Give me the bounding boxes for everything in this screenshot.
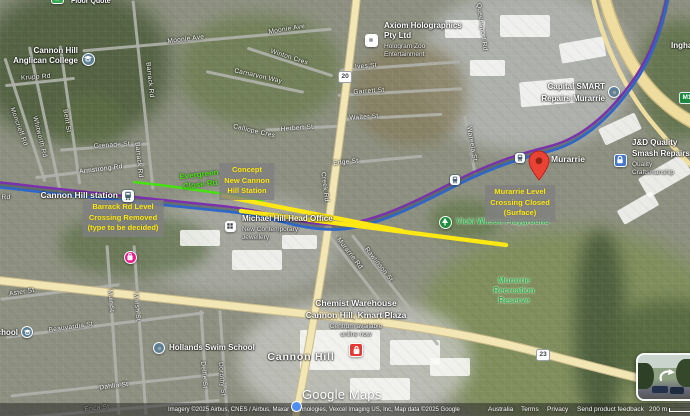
train-station-icon[interactable] [450, 175, 460, 185]
street-label: Rd [2, 195, 11, 202]
jd-quality-smash-repairs-poi-text: J&D Quality [632, 139, 677, 147]
concept-station-annotation: ConceptNew CannonHill Station [219, 163, 274, 200]
thumb-car [670, 387, 684, 394]
imagery-attribution: Imagery ©2025 Airbus, CNES / Airbus, Max… [168, 407, 460, 413]
terms-link[interactable]: Terms [521, 407, 539, 414]
annotation-line: (type to be decided) [88, 223, 159, 234]
office-icon[interactable] [225, 221, 236, 232]
route-shield: M1 [679, 92, 690, 104]
annotation-line: (Surface) [490, 208, 550, 219]
capital-smart-repairs-poi-text: Capital SMART [548, 83, 605, 91]
annotation-line: Crossing Closed [490, 198, 550, 209]
annotation-line: New Cannon [224, 176, 269, 187]
scale-bar [669, 408, 690, 412]
pharmacy-icon[interactable] [349, 343, 363, 357]
train-station-icon[interactable] [515, 153, 525, 163]
murarrie-recreation-reserve-label-text: Recreation [493, 287, 534, 295]
blue-dot-icon [291, 401, 302, 412]
cannon-hill-anglican-college-poi-text: Cannon Hill [34, 47, 78, 55]
hollands-swim-school-poi-text: Hollands Swim School [169, 344, 255, 352]
annotation-line: Crossing Removed [88, 213, 159, 224]
capital-smart-repairs-poi-text: Repairs Murarrie [541, 95, 605, 103]
inghams-poi-text: Inghams [671, 42, 690, 50]
map-canvas[interactable]: Moonie AveMoonie AveWinton CresCarnarvon… [0, 0, 690, 416]
murarrie-recreation-reserve-label-text: Murarrie [498, 277, 530, 285]
swim-school-icon[interactable] [153, 342, 165, 354]
murarrie-station-label-text: Murarrie [551, 155, 585, 164]
street-label: Muir St [106, 289, 114, 312]
cannon-hill-station-label-text: Cannon Hill station [41, 191, 118, 200]
chemist-warehouse-poi-text: Cannon Hill, Kmart Plaza [306, 311, 407, 320]
partial-school-poi-text: School [0, 329, 18, 337]
thumb-car [652, 386, 668, 393]
axiom-holographics-poi-text: Entertainment [384, 52, 424, 59]
murarrie-recreation-reserve-label-text: Reserve [498, 297, 529, 305]
jd-quality-smash-repairs-poi-text: Smash Repairs [632, 150, 690, 158]
lock-icon[interactable] [614, 154, 627, 167]
street-view-arrow-icon [657, 367, 679, 383]
thumb-tree-left [638, 363, 654, 389]
store-icon[interactable] [51, 0, 64, 4]
map-pin[interactable] [529, 151, 549, 180]
chemist-warehouse-poi-text: online now [340, 332, 371, 339]
feedback-link[interactable]: Send product feedback [577, 407, 644, 414]
annotation-line: Murarrie Level [490, 187, 550, 198]
shopping-icon[interactable] [124, 251, 137, 264]
axiom-holographics-poi-text: Hologram Zoo [384, 44, 425, 51]
street-label: Marsh St [132, 293, 141, 322]
annotation-line: Barrack Rd Level [88, 202, 159, 213]
floor-quote-poi-text: Floor Quote [71, 0, 111, 5]
street-view-thumbnail[interactable] [636, 353, 690, 401]
cannon-hill-anglican-college-poi-text: Anglican College [13, 57, 78, 65]
annotation-line: Concept [224, 165, 269, 176]
murarrie-crossing-annotation: Murarrie LevelCrossing Closed(Surface) [485, 185, 555, 222]
route-shield: 23 [536, 349, 550, 361]
jd-quality-smash-repairs-poi-text: Craftsmanship [632, 170, 674, 177]
train-station-icon[interactable] [122, 190, 134, 202]
building-icon[interactable] [365, 34, 378, 47]
school-icon[interactable] [82, 53, 95, 66]
cannon-hill-suburb-label-text: Cannon Hill [267, 352, 334, 363]
attribution-bar: Imagery ©2025 Airbus, CNES / Airbus, Max… [0, 403, 690, 416]
country-label: Australia [488, 407, 513, 414]
jd-quality-smash-repairs-poi-text: Quality [632, 162, 652, 169]
chemist-warehouse-poi-text: Centrum available [330, 324, 382, 331]
michael-hill-head-office-poi-text: Jewellery [242, 235, 269, 242]
michael-hill-head-office-poi-text: Michael Hill Head Office [242, 215, 333, 223]
school-icon[interactable] [21, 326, 33, 338]
scale-text: 200 m [649, 407, 667, 414]
google-maps-watermark[interactable]: Google Maps [302, 388, 382, 401]
annotation-line: Hill Station [224, 186, 269, 197]
chemist-warehouse-poi-text: Chemist Warehouse [315, 299, 396, 308]
axiom-holographics-poi-text: Axiom Holographics [384, 22, 462, 30]
route-shield: 20 [338, 71, 352, 83]
privacy-link[interactable]: Privacy [547, 407, 568, 414]
michael-hill-head-office-poi-text: New Contemporary [242, 227, 298, 234]
repair-shop-icon[interactable] [608, 86, 620, 98]
barrack-rd-annotation: Barrack Rd LevelCrossing Removed(type to… [83, 200, 164, 237]
axiom-holographics-poi-text: Pty Ltd [384, 32, 411, 40]
street-label: Delfie St [199, 361, 208, 389]
tree-icon[interactable] [439, 216, 452, 229]
